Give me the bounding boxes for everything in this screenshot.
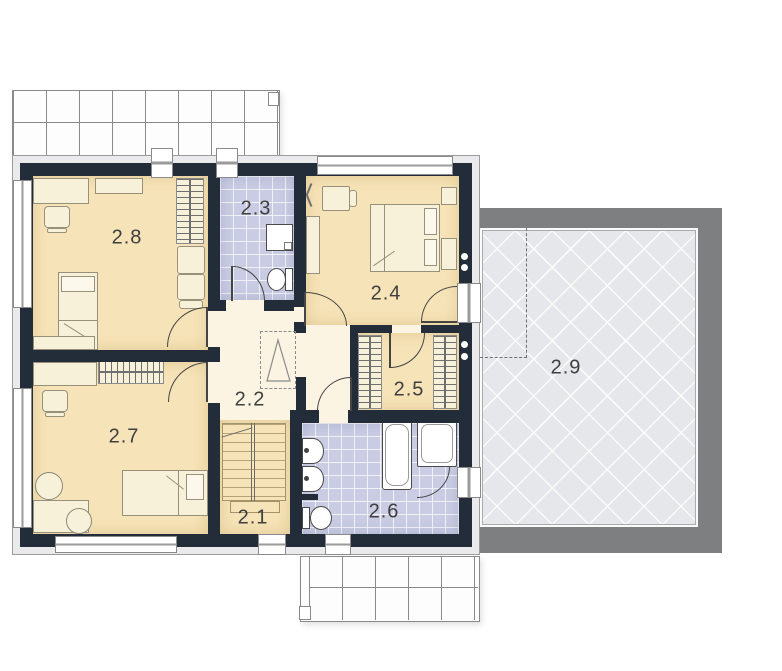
nightstand: [441, 187, 457, 205]
roof-overhang-dashed-vertical: [526, 228, 527, 358]
room-label-2-4: 2.4: [371, 283, 402, 306]
toilet-bowl: [267, 268, 286, 291]
bed-blanket-line: [58, 320, 98, 321]
pergola-top: [12, 90, 280, 158]
door-jamb: [386, 325, 392, 333]
room-label-2-8: 2.8: [112, 227, 143, 250]
door-leaf-room-2-7: [206, 362, 208, 402]
floor-plan: 2.8 2.3 2.4 2.2 2.5 2.7 2.1 2.6 2.9: [0, 0, 782, 671]
pergola-bottom-post: [299, 606, 311, 620]
door-jamb: [421, 325, 427, 333]
desk-chair-back: [45, 412, 65, 417]
wardrobe-rail: [176, 178, 204, 244]
pergola-connector: [216, 148, 238, 178]
door-leaf-room-2-4: [304, 292, 306, 326]
room-label-2-5: 2.5: [394, 379, 425, 402]
desk-chair: [42, 390, 68, 412]
room-label-2-6: 2.6: [369, 501, 400, 524]
wardrobe-rail: [358, 335, 382, 409]
wardrobe-rail: [98, 360, 164, 384]
sofa-seat: [177, 274, 205, 300]
wall: [208, 300, 226, 311]
desk-chair: [349, 190, 357, 207]
room-label-2-1: 2.1: [238, 507, 269, 530]
shelf: [95, 178, 143, 194]
room-label-2-3: 2.3: [241, 198, 272, 221]
door-leaf-room-2-3: [231, 266, 233, 301]
window: [55, 536, 177, 553]
window: [317, 156, 453, 175]
dresser: [33, 336, 95, 350]
door-jamb: [313, 410, 319, 423]
pergola-bottom: [300, 556, 480, 622]
bed-blanket-line: [384, 204, 385, 272]
round-chair: [35, 472, 63, 500]
wall: [290, 410, 302, 534]
room-label-2-7: 2.7: [109, 426, 140, 449]
toilet-bowl: [310, 506, 332, 530]
wall: [296, 377, 306, 413]
staircase-divider: [251, 423, 255, 501]
roof-overhang-dashed-horizontal: [480, 357, 527, 358]
attic-ladder-triangle: [260, 331, 296, 389]
vent-dot: [461, 341, 468, 348]
toilet-tank: [302, 507, 310, 529]
room-label-2-2: 2.2: [235, 389, 266, 412]
wall: [352, 410, 459, 423]
sofa-seat: [177, 246, 205, 274]
sink-faucet: [304, 448, 309, 453]
desk-chair: [44, 206, 70, 228]
door-leaf-room-2-6: [350, 377, 352, 411]
bed-pillow: [424, 208, 437, 235]
bed-blanket-line: [178, 470, 179, 516]
toilet-tank: [285, 268, 293, 291]
terrace-floor: [480, 228, 698, 527]
desk: [33, 362, 97, 386]
wall: [208, 403, 220, 534]
wardrobe-rail: [433, 335, 457, 409]
window: [13, 180, 32, 308]
door-jamb: [348, 410, 354, 423]
balcony-door: [457, 283, 481, 323]
wall: [425, 325, 459, 333]
wall: [208, 347, 220, 362]
wall: [264, 300, 294, 311]
window: [258, 534, 286, 555]
shower-inner: [421, 424, 453, 463]
sink-faucet: [304, 476, 309, 481]
washing-machine-drawer: [284, 242, 292, 250]
vent-dot: [461, 264, 468, 271]
round-chair: [66, 508, 92, 534]
pergola-bottom-grid: [309, 557, 478, 620]
pergola-connector: [151, 148, 173, 178]
bed-pillow: [61, 276, 95, 292]
vent-dot: [461, 253, 468, 260]
door-leaf-room-2-5: [389, 333, 391, 368]
pergola-top-end-cap: [268, 92, 279, 106]
window: [325, 534, 351, 555]
door-leaf-terrace: [421, 321, 457, 323]
vent-dot: [461, 353, 468, 360]
desk: [33, 178, 89, 204]
nightstand: [441, 238, 457, 270]
wall: [294, 176, 306, 307]
window: [457, 467, 481, 498]
wall: [33, 350, 208, 362]
window: [13, 388, 32, 528]
wall: [208, 176, 220, 307]
desk: [322, 186, 350, 211]
door-leaf-room-2-8: [206, 307, 208, 347]
plumbing-stub-wall: [302, 494, 318, 500]
tall-wardrobe: [306, 216, 320, 274]
bed-pillow: [424, 239, 437, 266]
room-label-2-9: 2.9: [551, 357, 582, 380]
bed-pillow: [186, 474, 204, 500]
bathtub-inner: [385, 424, 409, 486]
desk-chair-back: [47, 228, 67, 233]
